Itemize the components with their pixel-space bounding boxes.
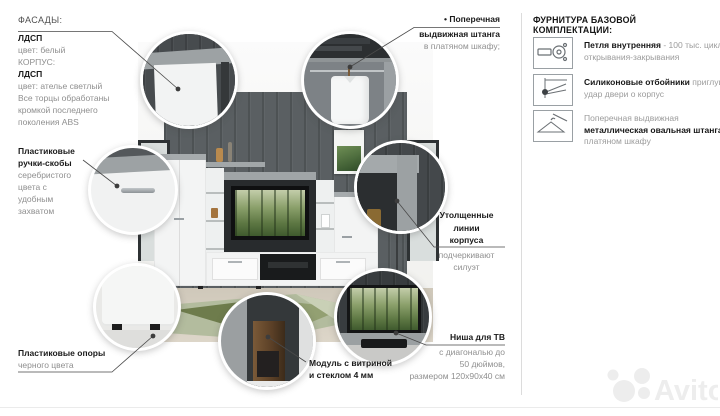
rod-desc: в платяном шкафу;	[385, 40, 500, 52]
facades-line: Все торцы обработаны	[18, 92, 133, 104]
vitrine-note: Модуль с витриной и стеклом 4 мм	[309, 357, 409, 381]
handles-title: ручки-скобы	[18, 157, 96, 169]
white-shirt	[331, 76, 369, 124]
infographic-page: ФАСАДЫ: ЛДСП цвет: белый КОРПУС: ЛДСП цв…	[0, 0, 720, 416]
tv-niche-desc: 50 дюймов,	[398, 358, 505, 370]
handles-title: Пластиковые	[18, 145, 96, 157]
facades-line: ЛДСП	[18, 68, 133, 80]
rod-title: выдвижная штанга	[385, 28, 500, 40]
rod-title: • Поперечная	[385, 13, 500, 25]
tv-niche-desc: размером 120x90x40 см	[398, 370, 505, 382]
tv-niche-note: Ниша для ТВ с диагональю до 50 дюймов, р…	[398, 331, 505, 382]
body-lines-title: линии	[424, 222, 509, 235]
vitrine-title: и стеклом 4 мм	[309, 369, 409, 381]
handles-note: Пластиковые ручки-скобы серебристого цве…	[18, 145, 96, 217]
avito-watermark: Avito	[600, 364, 718, 408]
handles-desc: серебристого	[18, 169, 96, 181]
facades-line: цвет: белый	[18, 44, 133, 56]
panel-divider	[521, 13, 522, 395]
handle-bar	[121, 188, 155, 193]
hanging-rod	[310, 70, 390, 72]
rod-note: • Поперечная выдвижная штанга в платяном…	[385, 13, 500, 52]
avito-wordmark: Avito	[654, 375, 718, 407]
body-lines-desc: силуэт	[424, 261, 509, 274]
facades-title: ФАСАДЫ:	[18, 15, 133, 25]
facades-line: ЛДСП	[18, 32, 133, 44]
handles-desc: удобным	[18, 193, 96, 205]
door-bumper-icon	[533, 74, 573, 106]
hardware-item-bumper: Силиконовые отбойники приглушат удар две…	[584, 77, 720, 100]
avito-logo-icon	[608, 368, 651, 402]
hardware-header: ФУРНИТУРА БАЗОВОЙ КОМПЛЕКТАЦИИ:	[533, 15, 718, 35]
vase-decor	[216, 148, 223, 162]
body-lines-desc: подчеркивают	[424, 249, 509, 262]
callout-handle-detail	[88, 145, 178, 235]
vitrine-title: Модуль с витриной	[309, 357, 409, 369]
callout-plastic-supports	[93, 263, 181, 351]
callout-facade-detail	[140, 31, 238, 129]
handles-desc: цвета с	[18, 181, 96, 193]
facades-line: КОРПУС:	[18, 56, 133, 68]
media-niche	[260, 254, 316, 280]
tv-in-niche	[347, 285, 421, 333]
tv-niche-title: Ниша для ТВ	[398, 331, 505, 343]
facades-note: ФАСАДЫ: ЛДСП цвет: белый КОРПУС: ЛДСП цв…	[18, 15, 133, 128]
body-lines-title: Утолщенные	[424, 209, 509, 222]
handles-desc: захватом	[18, 205, 96, 217]
supports-note: Пластиковые опоры черного цвета	[18, 347, 128, 371]
drawer-left	[212, 258, 258, 280]
facades-line: цвет: ателье светлый	[18, 80, 133, 92]
tv-niche-desc: с диагональю до	[398, 346, 505, 358]
hardware-item-hinge: Петля внутренняя - 100 тыс. циклов откры…	[584, 40, 720, 63]
hinge-icon	[533, 37, 573, 69]
facades-line: кромкой последнего	[18, 104, 133, 116]
body-lines-title: корпуса	[424, 234, 509, 247]
supports-title: Пластиковые опоры	[18, 347, 128, 359]
body-lines-note: Утолщенные линии корпуса подчеркивают си…	[424, 209, 509, 274]
callout-vitrine-module	[218, 292, 316, 390]
tv-screen	[233, 188, 307, 238]
hanger-rod-icon	[533, 110, 573, 142]
supports-desc: черного цвета	[18, 359, 128, 371]
hardware-item-rod: Поперечная выдвижная металлическая оваль…	[584, 113, 720, 148]
facades-line: поколения ABS	[18, 116, 133, 128]
